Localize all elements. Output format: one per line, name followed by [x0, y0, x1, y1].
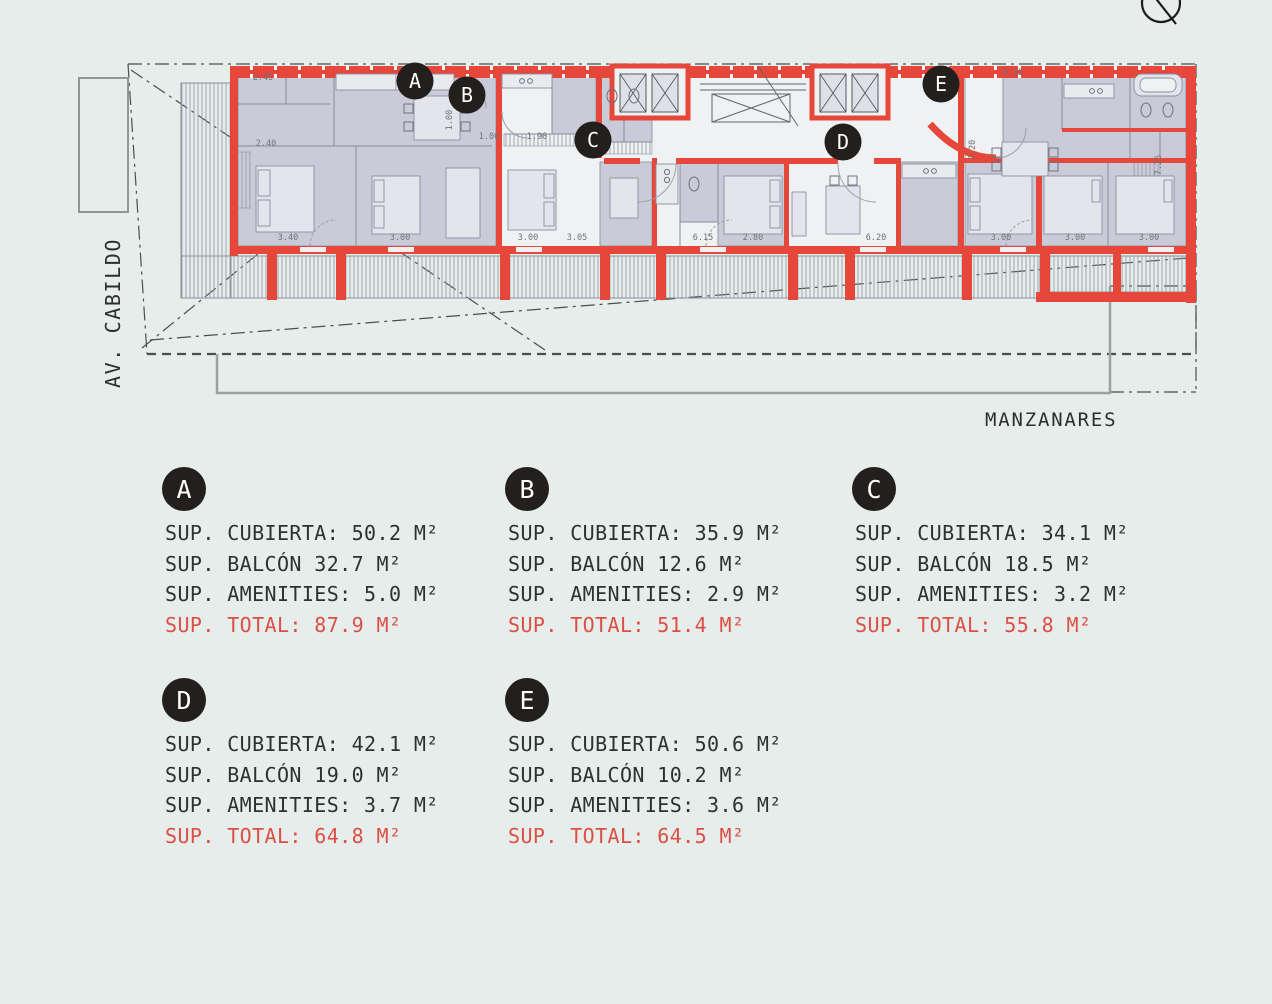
legend-total: SUP. TOTAL: 55.8 M²	[855, 610, 1198, 641]
unit-badge-D: D	[162, 678, 206, 722]
unit-badge-A: A	[162, 467, 206, 511]
svg-text:D: D	[837, 130, 849, 154]
dimension-label: 1.00	[479, 132, 499, 142]
dimension-label: 2.40	[256, 139, 276, 149]
sidewalk-outline	[79, 78, 128, 212]
svg-text:E: E	[935, 72, 947, 96]
legend-line: SUP. AMENITIES: 3.2 M²	[855, 579, 1198, 610]
dimension-label: 7.25	[1154, 155, 1164, 175]
legend-line: SUP. AMENITIES: 3.7 M²	[165, 790, 508, 821]
svg-text:C: C	[587, 128, 599, 152]
legend-total: SUP. TOTAL: 87.9 M²	[165, 610, 508, 641]
legend-unit-C: CSUP. CUBIERTA: 34.1 M²SUP. BALCÓN 18.5 …	[848, 465, 1198, 640]
legend-unit-B: BSUP. CUBIERTA: 35.9 M²SUP. BALCÓN 12.6 …	[501, 465, 851, 640]
dimension-label: 6.15	[693, 233, 713, 243]
legend-line: SUP. CUBIERTA: 50.2 M²	[165, 518, 508, 549]
dimension-label: 1.90	[527, 132, 547, 142]
unit-marker-B: B	[449, 77, 486, 114]
street-label-cabildo: AV. CABILDO	[101, 238, 125, 388]
dimension-label: 3.00	[1065, 233, 1085, 243]
dimension-label: 6.20	[866, 233, 886, 243]
svg-text:A: A	[409, 69, 421, 93]
street-label-manzanares: MANZANARES	[985, 409, 1117, 431]
legend-line: SUP. CUBIERTA: 35.9 M²	[508, 518, 851, 549]
legend-line: SUP. CUBIERTA: 42.1 M²	[165, 729, 508, 760]
unit-badge-B: B	[505, 467, 549, 511]
dimension-label: 3.00	[518, 233, 538, 243]
legend-line: SUP. BALCÓN 19.0 M²	[165, 760, 508, 791]
north-arrow-icon	[1142, 0, 1180, 24]
unit-marker-A: A	[397, 63, 434, 100]
legend-line: SUP. BALCÓN 18.5 M²	[855, 549, 1198, 580]
dimension-label: 3.05	[567, 233, 587, 243]
legend-total: SUP. TOTAL: 51.4 M²	[508, 610, 851, 641]
legend-line: SUP. AMENITIES: 3.6 M²	[508, 790, 851, 821]
dimension-label: 2.45	[253, 73, 273, 83]
dimension-label: 2.80	[743, 233, 763, 243]
legend-line: SUP. BALCÓN 32.7 M²	[165, 549, 508, 580]
floor-plan: 2.452.401.003.403.001.001.903.003.056.15…	[0, 0, 1272, 460]
legend-unit-E: ESUP. CUBIERTA: 50.6 M²SUP. BALCÓN 10.2 …	[501, 676, 851, 851]
legend-line: SUP. AMENITIES: 5.0 M²	[165, 579, 508, 610]
unit-badge-E: E	[505, 678, 549, 722]
dimension-label: 3.40	[278, 233, 298, 243]
unit-badge-C: C	[852, 467, 896, 511]
legend-unit-D: DSUP. CUBIERTA: 42.1 M²SUP. BALCÓN 19.0 …	[158, 676, 508, 851]
dimension-label: 3.00	[1139, 233, 1159, 243]
unit-marker-D: D	[825, 124, 862, 161]
unit-marker-E: E	[923, 66, 960, 103]
svg-text:B: B	[461, 83, 473, 107]
dimension-label: 6.15	[1003, 68, 1023, 78]
dimension-label: 7.20	[968, 140, 978, 160]
dimension-label: 3.00	[390, 233, 410, 243]
legend-line: SUP. CUBIERTA: 34.1 M²	[855, 518, 1198, 549]
lot-outline	[217, 286, 1110, 393]
legend-line: SUP. BALCÓN 10.2 M²	[508, 760, 851, 791]
legend-line: SUP. BALCÓN 12.6 M²	[508, 549, 851, 580]
legend-line: SUP. CUBIERTA: 50.6 M²	[508, 729, 851, 760]
legend-total: SUP. TOTAL: 64.8 M²	[165, 821, 508, 852]
legend-unit-A: ASUP. CUBIERTA: 50.2 M²SUP. BALCÓN 32.7 …	[158, 465, 508, 640]
unit-marker-C: C	[575, 122, 612, 159]
legend-line: SUP. AMENITIES: 2.9 M²	[508, 579, 851, 610]
legend-total: SUP. TOTAL: 64.5 M²	[508, 821, 851, 852]
dimension-label: 3.00	[991, 233, 1011, 243]
dimension-label: 1.00	[445, 110, 455, 130]
